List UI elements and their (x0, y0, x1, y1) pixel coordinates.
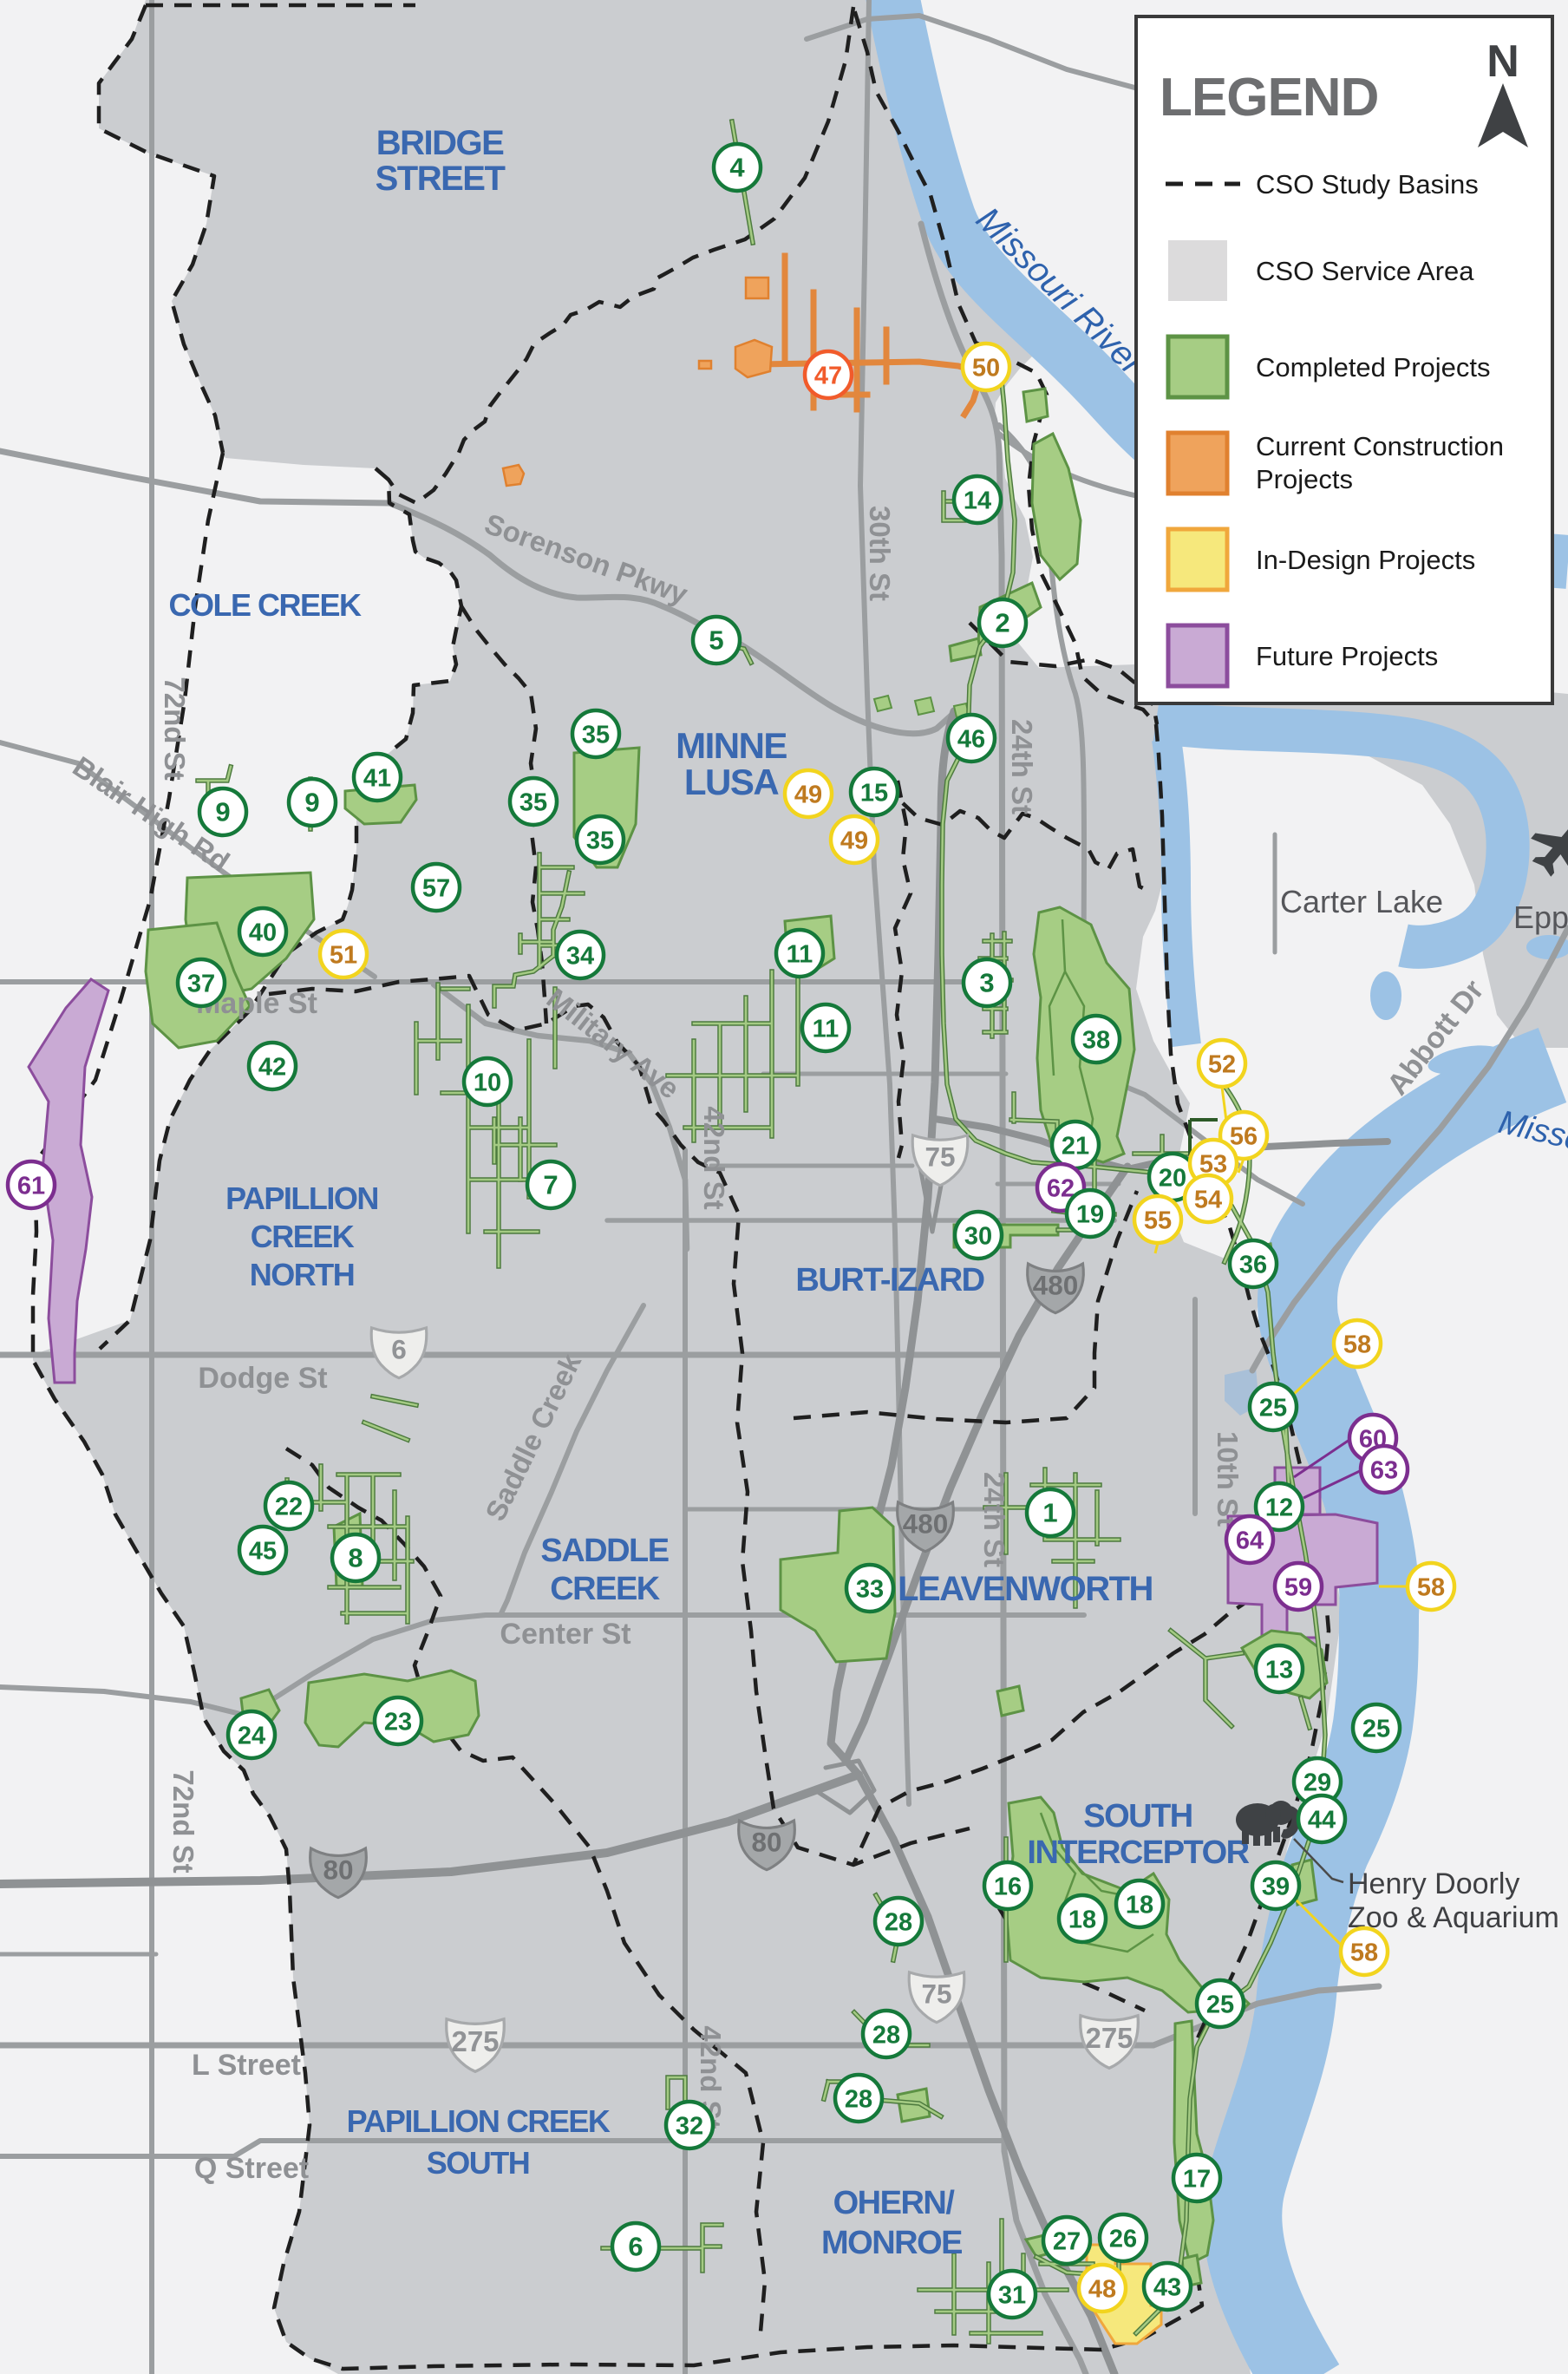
svg-text:59: 59 (1284, 1574, 1312, 1602)
svg-text:24th St: 24th St (978, 1472, 1010, 1567)
svg-text:45: 45 (249, 1538, 277, 1566)
svg-text:47: 47 (814, 363, 842, 390)
svg-text:SADDLE: SADDLE (540, 1533, 668, 1569)
svg-text:5: 5 (709, 625, 723, 656)
svg-text:Zoo & Aquarium: Zoo & Aquarium (1348, 1901, 1559, 1934)
svg-text:CSO Service Area: CSO Service Area (1256, 256, 1474, 286)
svg-text:BURT-IZARD: BURT-IZARD (795, 1262, 983, 1298)
svg-text:28: 28 (872, 2022, 900, 2050)
svg-text:480: 480 (903, 1508, 949, 1540)
svg-text:CREEK: CREEK (550, 1571, 661, 1607)
svg-text:80: 80 (751, 1827, 781, 1858)
svg-text:25: 25 (1206, 1991, 1234, 2019)
svg-text:26: 26 (1109, 2226, 1137, 2253)
svg-text:18: 18 (1126, 1892, 1153, 1919)
svg-text:52: 52 (1208, 1051, 1236, 1079)
svg-text:72nd St: 72nd St (167, 1769, 199, 1873)
svg-text:NORTH: NORTH (250, 1257, 355, 1292)
svg-text:29: 29 (1303, 1769, 1331, 1797)
svg-text:11: 11 (813, 1016, 840, 1043)
svg-text:1: 1 (1042, 1498, 1057, 1528)
svg-text:480: 480 (1033, 1270, 1079, 1301)
svg-text:25: 25 (1362, 1716, 1390, 1743)
svg-text:Center St: Center St (500, 1618, 630, 1651)
svg-text:54: 54 (1194, 1187, 1222, 1214)
svg-text:57: 57 (422, 875, 450, 903)
svg-text:12: 12 (1265, 1494, 1293, 1522)
svg-text:18: 18 (1068, 1906, 1096, 1934)
svg-text:30: 30 (964, 1223, 992, 1251)
svg-text:34: 34 (566, 943, 594, 971)
svg-text:11: 11 (787, 941, 813, 969)
svg-text:CSO Study Basins: CSO Study Basins (1256, 169, 1479, 199)
svg-text:275: 275 (1085, 2022, 1133, 2054)
svg-text:39: 39 (1262, 1874, 1290, 1901)
svg-text:CREEK: CREEK (251, 1219, 355, 1254)
svg-text:49: 49 (840, 827, 868, 855)
svg-text:42: 42 (258, 1054, 286, 1082)
svg-text:55: 55 (1144, 1207, 1172, 1235)
svg-text:SOUTH: SOUTH (1083, 1798, 1192, 1834)
svg-text:42nd St: 42nd St (698, 1106, 730, 1209)
svg-text:Current Construction: Current Construction (1256, 431, 1504, 461)
svg-text:28: 28 (845, 2086, 872, 2114)
svg-text:49: 49 (794, 782, 822, 809)
svg-text:75: 75 (921, 1978, 951, 2010)
svg-text:OHERN/: OHERN/ (833, 2185, 956, 2221)
svg-text:2: 2 (995, 608, 1009, 638)
svg-text:275: 275 (451, 2025, 499, 2057)
svg-text:8: 8 (348, 1543, 363, 1573)
svg-text:24: 24 (238, 1723, 265, 1750)
svg-text:61: 61 (17, 1173, 45, 1200)
svg-text:Carter Lake: Carter Lake (1280, 884, 1443, 919)
svg-text:9: 9 (304, 788, 319, 818)
svg-text:58: 58 (1417, 1574, 1445, 1602)
svg-text:MONROE: MONROE (821, 2225, 962, 2261)
svg-text:37: 37 (187, 971, 215, 998)
svg-text:16: 16 (994, 1874, 1022, 1901)
svg-text:STREET: STREET (376, 160, 506, 198)
svg-text:25: 25 (1259, 1395, 1287, 1422)
svg-text:PAPILLION: PAPILLION (225, 1180, 378, 1216)
svg-text:35: 35 (519, 789, 547, 817)
svg-text:Q Street: Q Street (194, 2152, 309, 2185)
svg-text:Dodge St: Dodge St (198, 1362, 327, 1395)
svg-text:64: 64 (1236, 1527, 1264, 1555)
svg-text:6: 6 (391, 1334, 407, 1365)
svg-text:32: 32 (676, 2113, 703, 2141)
svg-text:Projects: Projects (1256, 464, 1353, 494)
svg-text:50: 50 (972, 355, 1000, 383)
svg-text:13: 13 (1265, 1657, 1293, 1684)
svg-text:21: 21 (1062, 1133, 1089, 1161)
svg-text:10: 10 (474, 1069, 501, 1097)
svg-text:75: 75 (924, 1141, 955, 1173)
svg-text:38: 38 (1082, 1027, 1110, 1055)
svg-text:LUSA: LUSA (684, 762, 780, 802)
svg-text:PAPILLION CREEK: PAPILLION CREEK (347, 2103, 611, 2139)
svg-text:31: 31 (998, 2282, 1026, 2310)
svg-text:10th St: 10th St (1212, 1431, 1244, 1527)
svg-text:28: 28 (885, 1909, 912, 1937)
svg-text:33: 33 (856, 1576, 884, 1604)
svg-text:51: 51 (330, 942, 357, 970)
svg-text:7: 7 (543, 1170, 558, 1200)
svg-text:44: 44 (1308, 1807, 1336, 1834)
svg-text:17: 17 (1183, 2166, 1211, 2194)
svg-text:20: 20 (1159, 1165, 1186, 1193)
svg-text:80: 80 (323, 1854, 353, 1886)
svg-text:35: 35 (582, 722, 610, 749)
svg-text:Future Projects: Future Projects (1256, 641, 1438, 671)
svg-text:L Street: L Street (192, 2049, 301, 2082)
svg-text:14: 14 (964, 487, 991, 515)
svg-text:23: 23 (384, 1709, 412, 1736)
svg-text:MINNE: MINNE (676, 725, 787, 766)
svg-text:LEGEND: LEGEND (1160, 68, 1378, 128)
svg-text:LEAVENWORTH: LEAVENWORTH (898, 1570, 1153, 1608)
svg-text:46: 46 (957, 726, 985, 754)
svg-text:COLE CREEK: COLE CREEK (168, 587, 362, 623)
svg-text:72nd St: 72nd St (159, 677, 191, 780)
svg-text:Completed Projects: Completed Projects (1256, 352, 1491, 383)
svg-text:BRIDGE: BRIDGE (376, 124, 504, 162)
svg-text:In-Design Projects: In-Design Projects (1256, 545, 1475, 575)
svg-text:48: 48 (1088, 2276, 1116, 2304)
svg-text:41: 41 (363, 765, 391, 793)
svg-text:27: 27 (1053, 2228, 1081, 2256)
svg-text:30th St: 30th St (864, 506, 896, 601)
svg-text:9: 9 (215, 797, 230, 827)
svg-text:N: N (1486, 36, 1519, 87)
svg-text:36: 36 (1239, 1252, 1267, 1279)
svg-text:6: 6 (628, 2232, 643, 2262)
svg-text:24th St: 24th St (1006, 719, 1038, 814)
svg-text:35: 35 (586, 827, 614, 855)
svg-text:58: 58 (1350, 1939, 1378, 1967)
svg-text:63: 63 (1370, 1457, 1398, 1485)
svg-text:3: 3 (979, 968, 994, 998)
svg-text:4: 4 (729, 153, 745, 183)
svg-text:40: 40 (249, 919, 277, 947)
svg-text:SOUTH: SOUTH (427, 2145, 530, 2181)
svg-text:56: 56 (1230, 1123, 1258, 1151)
svg-text:58: 58 (1343, 1331, 1371, 1359)
svg-text:43: 43 (1153, 2274, 1181, 2302)
svg-text:15: 15 (860, 780, 888, 808)
svg-text:22: 22 (275, 1494, 303, 1521)
svg-text:Henry Doorly: Henry Doorly (1348, 1867, 1519, 1900)
svg-text:19: 19 (1076, 1201, 1104, 1229)
svg-text:Eppley: Eppley (1513, 899, 1568, 935)
svg-text:INTERCEPTOR: INTERCEPTOR (1027, 1834, 1249, 1871)
